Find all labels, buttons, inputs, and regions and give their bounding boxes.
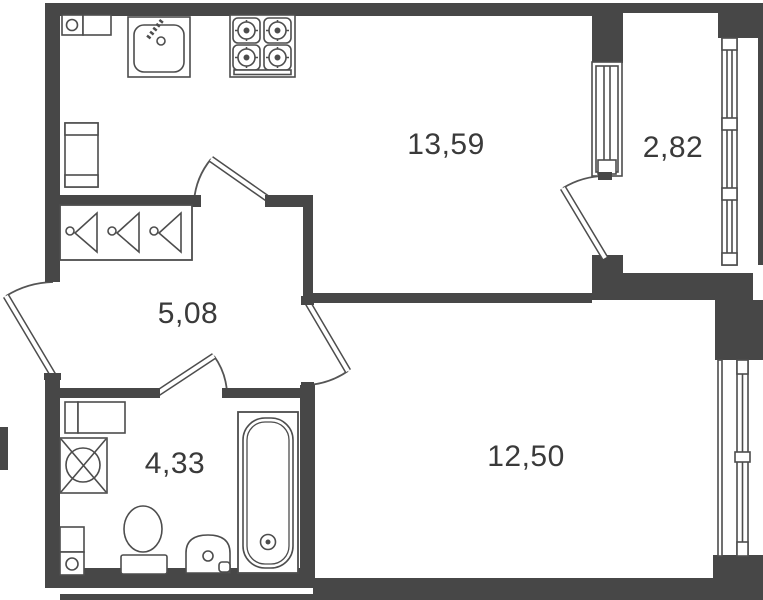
floor-plan: 13,59 2,82 5,08 4,33 12,50 bbox=[0, 0, 763, 600]
wall-room-window-bottom bbox=[713, 555, 763, 578]
wall-bathroom-top-right bbox=[227, 388, 303, 398]
room-window bbox=[718, 360, 750, 556]
burner bbox=[264, 45, 291, 70]
wall-top-main bbox=[45, 3, 592, 16]
water-heater-icon bbox=[60, 527, 84, 575]
wall-left-upper bbox=[45, 3, 60, 282]
room-area-label: 12,50 bbox=[487, 440, 565, 473]
stove-icon bbox=[230, 15, 295, 77]
burner bbox=[233, 45, 260, 70]
balcony-area-label: 2,82 bbox=[643, 131, 703, 164]
washing-machine-icon bbox=[60, 438, 107, 493]
wall-left-lower bbox=[45, 375, 60, 588]
entry-door bbox=[6, 274, 61, 380]
bathroom-area-label: 4,33 bbox=[145, 447, 205, 480]
wall-kitchen-balcony-upper bbox=[592, 3, 623, 63]
toilet-icon bbox=[121, 506, 167, 574]
bathtub-icon bbox=[238, 412, 298, 573]
hallway-area-label: 5,08 bbox=[158, 297, 218, 330]
balcony-door bbox=[563, 172, 612, 258]
kitchen-counter bbox=[62, 15, 111, 35]
kitchen-door bbox=[192, 159, 275, 207]
wall-balcony-bottom bbox=[592, 273, 753, 300]
washbasin-icon bbox=[186, 535, 230, 573]
wall-bathroom-right bbox=[300, 385, 315, 588]
wall-balcony-door-sill bbox=[592, 255, 623, 273]
wall-room-right-upper bbox=[715, 300, 763, 360]
balcony-door-frame bbox=[592, 62, 622, 176]
bathroom-door bbox=[151, 356, 231, 398]
wardrobe-icon bbox=[60, 205, 192, 260]
wall-room-bottom bbox=[313, 578, 763, 594]
balcony-window bbox=[722, 38, 737, 265]
wall-balcony-outer-line bbox=[758, 13, 763, 265]
wall-bathroom-top-left bbox=[45, 388, 158, 398]
wall-bottom-edge-bar bbox=[60, 594, 763, 600]
burner bbox=[233, 18, 260, 43]
bathroom-cabinet-icon bbox=[65, 402, 125, 433]
burner bbox=[264, 18, 291, 43]
fridge-cabinet-icon bbox=[65, 123, 98, 187]
wall-kitchen-room bbox=[303, 293, 592, 303]
kitchen-area-label: 13,59 bbox=[407, 128, 485, 161]
wall-left-edge-fragment bbox=[0, 427, 8, 470]
wall-hall-room bbox=[303, 195, 313, 303]
walls bbox=[0, 3, 763, 600]
wall-top-right-block bbox=[718, 3, 763, 38]
kitchen-sink-icon bbox=[128, 17, 190, 77]
room-door bbox=[301, 296, 348, 390]
